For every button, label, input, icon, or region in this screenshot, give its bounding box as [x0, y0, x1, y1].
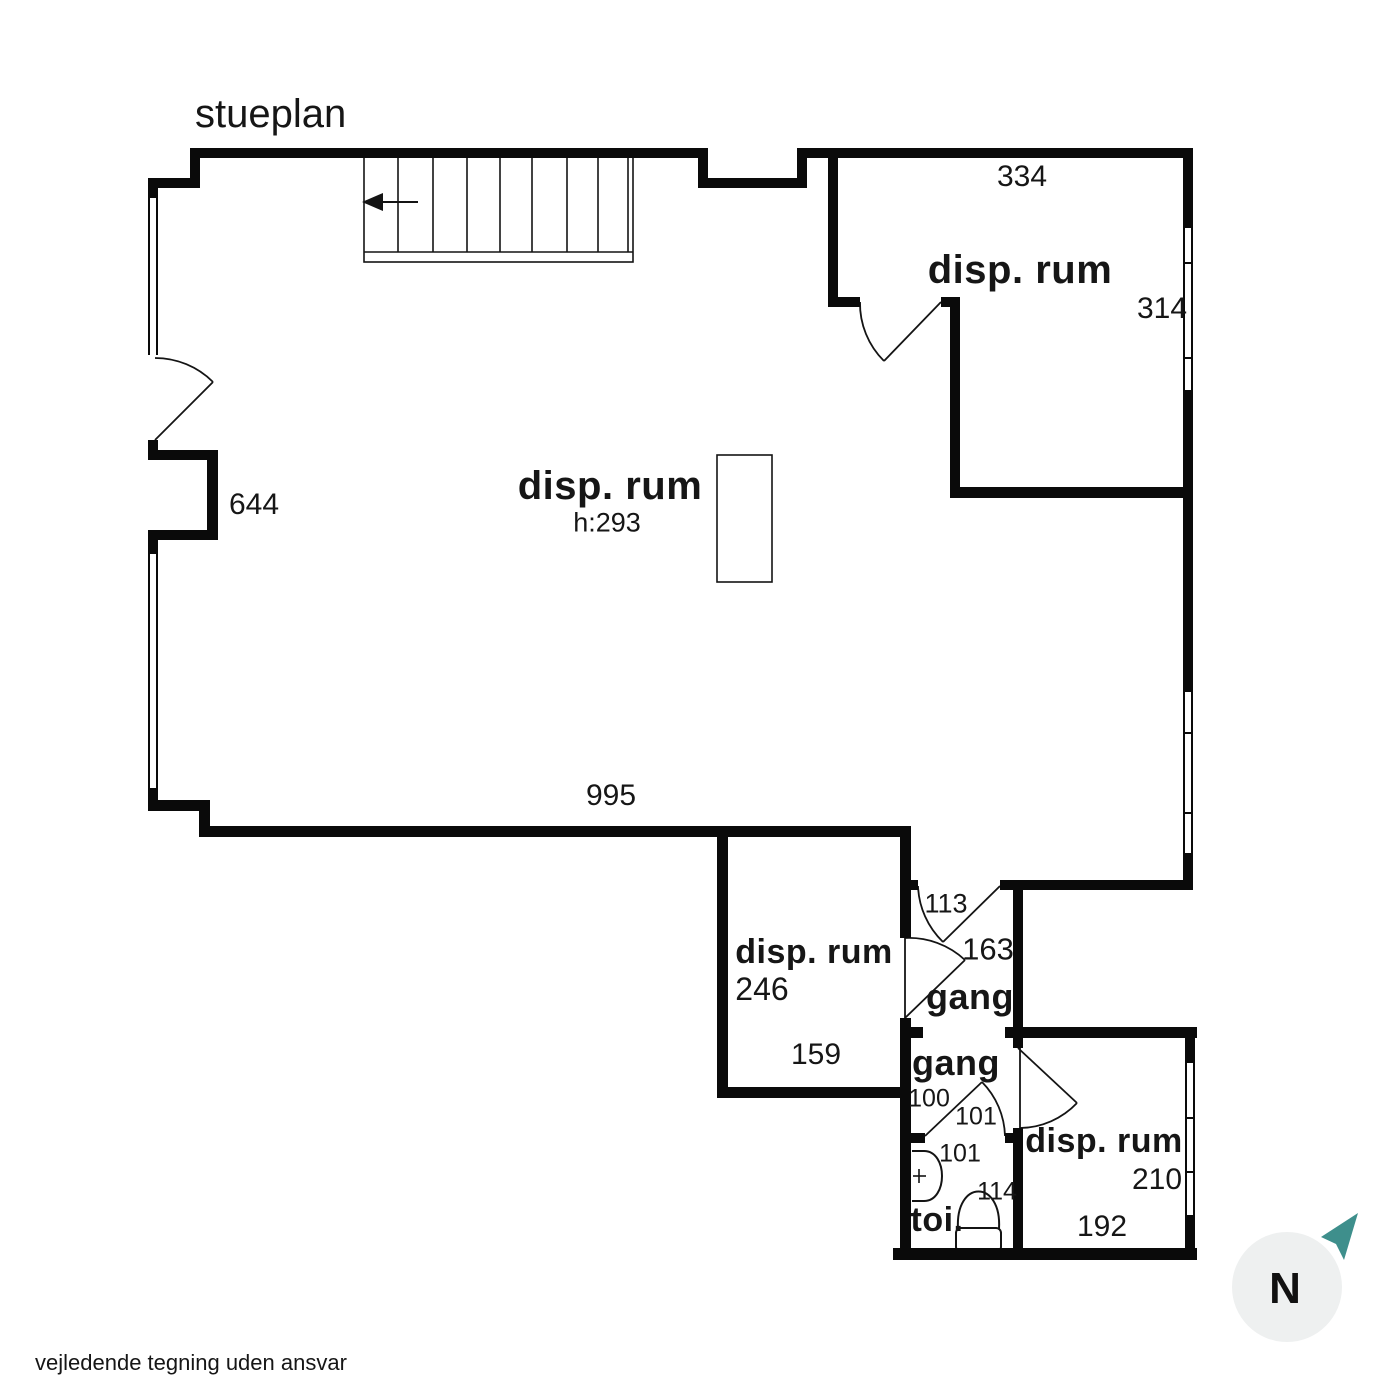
- window: [1183, 692, 1193, 853]
- wall: [1005, 1133, 1023, 1143]
- wall: [199, 826, 911, 837]
- page-title: stueplan: [195, 92, 346, 137]
- dimension-995: 995: [586, 781, 636, 811]
- wall: [828, 297, 860, 307]
- wall: [190, 148, 708, 158]
- wall: [900, 837, 911, 885]
- dimension-113: 113: [924, 891, 967, 918]
- door-main-entry: [155, 358, 213, 440]
- wall: [1013, 884, 1023, 1048]
- window-divider: [1183, 732, 1193, 734]
- north-label: N: [1269, 1267, 1301, 1311]
- sink-fixture: [912, 1151, 942, 1201]
- window: [148, 198, 158, 355]
- dimension-100: 100: [908, 1087, 950, 1112]
- wall: [1005, 1027, 1197, 1038]
- wall: [1183, 390, 1193, 692]
- wall: [1183, 148, 1193, 228]
- room-label-top-right: disp. rum: [928, 250, 1113, 290]
- wall: [900, 1133, 925, 1143]
- wall: [698, 178, 807, 188]
- island-fixture: [717, 455, 772, 582]
- wall: [1185, 1038, 1195, 1063]
- door-top-right-room: [860, 302, 941, 361]
- wall: [148, 530, 218, 540]
- dimension-210: 210: [1132, 1165, 1182, 1195]
- window-divider: [1185, 1171, 1195, 1173]
- room-label-bottom-right: disp. rum: [1025, 1124, 1183, 1158]
- window-divider: [1185, 1117, 1195, 1119]
- wall: [900, 885, 911, 938]
- wall: [717, 837, 728, 1098]
- stair-direction-arrow-icon: [362, 193, 418, 211]
- dimension-163: 163: [962, 934, 1014, 965]
- window: [1185, 1063, 1195, 1215]
- room-label-mid-bottom: disp. rum: [735, 935, 893, 969]
- dimension-192: 192: [1077, 1212, 1127, 1242]
- staircase: [364, 156, 633, 262]
- dimension-246: 246: [735, 973, 788, 1005]
- dimension-314: 314: [1137, 294, 1187, 324]
- dimension-644: 644: [229, 490, 279, 520]
- wall: [828, 158, 838, 303]
- room-label-gang-upper: gang: [926, 979, 1014, 1015]
- dimension-101-gang: 101: [955, 1105, 997, 1130]
- window-divider: [1183, 357, 1193, 359]
- room-label-gang-lower: gang: [912, 1045, 1000, 1081]
- wall: [950, 487, 1193, 498]
- wall: [207, 450, 218, 540]
- dimension-159: 159: [791, 1040, 841, 1070]
- wall: [148, 540, 158, 554]
- window-divider: [1183, 812, 1193, 814]
- wall: [1000, 880, 1193, 890]
- door-bottom-right-room: [1018, 1048, 1077, 1128]
- compass: N: [1232, 1232, 1342, 1342]
- dimension-101-toilet: 101: [939, 1142, 981, 1167]
- disclaimer-text: vejledende tegning uden ansvar: [35, 1350, 347, 1376]
- room-height-main: h:293: [573, 510, 641, 537]
- wall: [797, 148, 1193, 158]
- wall: [717, 1087, 911, 1098]
- dimension-334: 334: [997, 162, 1047, 192]
- wall: [900, 1027, 923, 1038]
- wall: [950, 297, 960, 498]
- wall: [893, 1248, 1197, 1260]
- room-label-main: disp. rum: [518, 466, 703, 506]
- room-label-toilet: toi.: [911, 1203, 964, 1237]
- floor-plan: stueplan disp. rum h:293 644 995 disp. r…: [0, 0, 1400, 1400]
- dimension-114: 114: [977, 1180, 1017, 1205]
- wall: [148, 184, 158, 198]
- window: [148, 554, 158, 788]
- window-divider: [1183, 262, 1193, 264]
